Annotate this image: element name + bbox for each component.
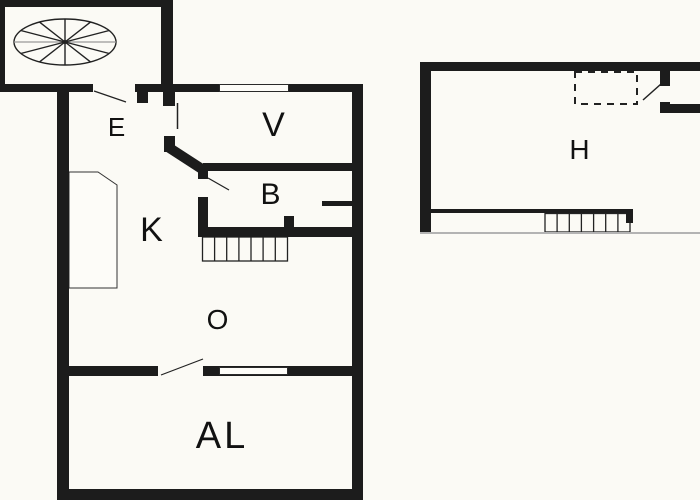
wall-ev-upper-stub (163, 92, 175, 106)
wall-ev-corner-stub (164, 136, 175, 152)
spiral-staircase-icon (14, 19, 116, 65)
wall-right-bldg-top (420, 62, 700, 71)
stairs-right-building (545, 214, 630, 233)
wall-top-segment-a (0, 84, 93, 92)
wall-b-right-stub (322, 201, 352, 206)
door-leaf-h (643, 84, 661, 100)
wall-top-segment-b (135, 84, 220, 92)
wall-h-bottom-stub (626, 209, 633, 223)
room-label-b: B (260, 180, 281, 210)
wall-h-l-horizontal (668, 104, 700, 113)
door-leaf-stair-to-e (94, 91, 126, 102)
wall-b-left-upper (198, 166, 208, 179)
wall-annex-right (161, 0, 173, 92)
wall-h-door-stub (660, 71, 670, 86)
room-label-al: AL (196, 417, 248, 455)
wall-annex-top (0, 0, 173, 7)
plan-linework (0, 0, 700, 500)
room-label-e: E (108, 114, 126, 140)
window-oal-wall (219, 367, 288, 375)
door-leaf-b (208, 178, 229, 190)
wall-oal-left (69, 366, 158, 376)
wall-b-bottom-stub (284, 216, 294, 237)
wall-right-outer (352, 84, 363, 500)
room-label-v: V (262, 108, 286, 142)
room-label-o: O (207, 306, 230, 334)
floor-plan: E V B K O AL H (0, 0, 700, 500)
wall-h-bottom (431, 209, 633, 213)
wall-left-outer (57, 84, 69, 500)
kitchen-counter (69, 172, 117, 288)
wall-annex-left (0, 0, 5, 92)
stairs-left-building (203, 237, 288, 261)
right-bldg-bottom-line (420, 232, 700, 234)
room-label-k: K (140, 213, 164, 247)
door-leaf-o-al (161, 359, 203, 375)
room-label-h: H (569, 136, 590, 164)
window-top-wall (219, 84, 289, 92)
wall-b-bottom (198, 227, 363, 237)
wall-bottom-outer (57, 489, 363, 500)
wall-stub-e-door (137, 92, 148, 103)
dashed-opening-icon (575, 72, 637, 104)
wall-right-bldg-left (420, 62, 431, 234)
wall-diagonal (0, 0, 700, 500)
wall-vb-divider (203, 163, 363, 171)
